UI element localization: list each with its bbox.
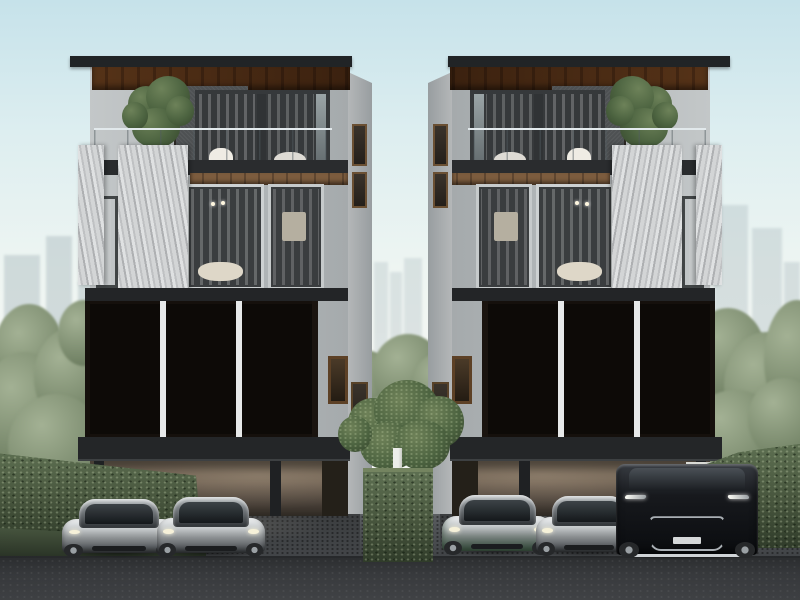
wheel-left [619,542,639,558]
spindle-grille [649,516,726,551]
headlight-left [542,528,553,533]
front-intake [92,546,147,551]
front-intake [564,545,615,550]
car-windshield [557,501,621,522]
front-intake [185,546,237,551]
van-windshield [629,468,745,491]
wheel-right [246,543,263,557]
car-windshield [85,504,153,524]
architectural-rendering [0,0,800,600]
headlight-left [163,529,174,534]
headlight-left [449,527,460,532]
car-windshield [464,500,530,521]
cars-layer [0,0,800,600]
license-plate [673,537,701,545]
headlight-right [727,495,750,499]
headlight-left [624,495,647,499]
wheel-left [444,541,462,555]
chrome-lower-lip [632,554,743,557]
front-intake [471,544,524,549]
sports-car [157,497,265,555]
headlight-right [248,529,259,534]
wheel-left [538,542,555,556]
luxury-van [616,460,758,557]
wheel-left [64,544,82,557]
car-windshield [179,502,244,523]
